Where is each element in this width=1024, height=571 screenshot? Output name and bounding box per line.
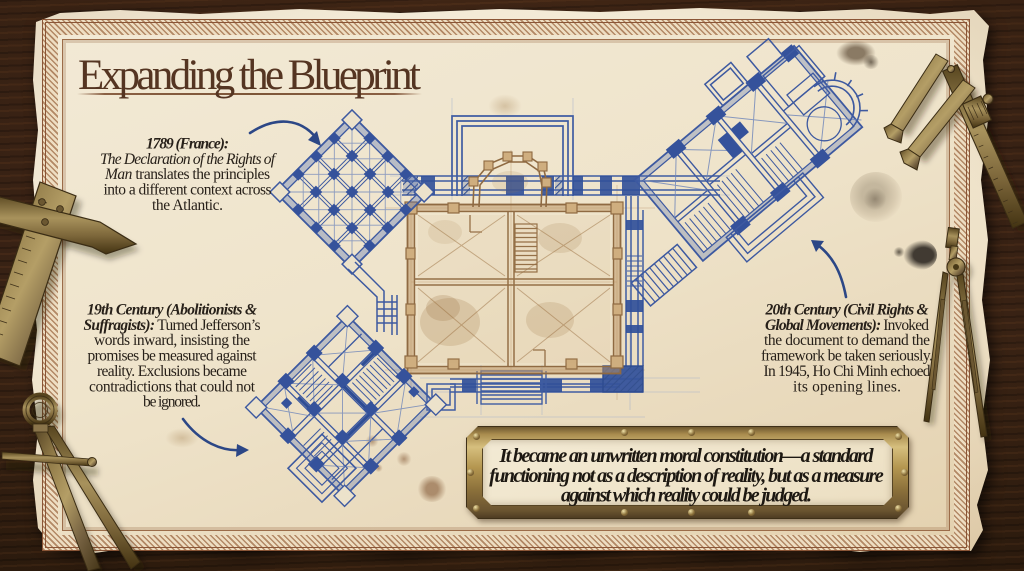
svg-text:be ignored.: be ignored. (143, 394, 201, 411)
svg-text:against which reality could be: against which reality could be judged. (561, 485, 812, 507)
svg-text:It became an unwritten moral c: It became an unwritten moral constitutio… (499, 445, 875, 467)
svg-text:its opening lines.: its opening lines. (793, 378, 901, 395)
svg-text:Expanding the Blueprint: Expanding the Blueprint (78, 52, 421, 99)
svg-text:the Atlantic.: the Atlantic. (152, 197, 223, 214)
